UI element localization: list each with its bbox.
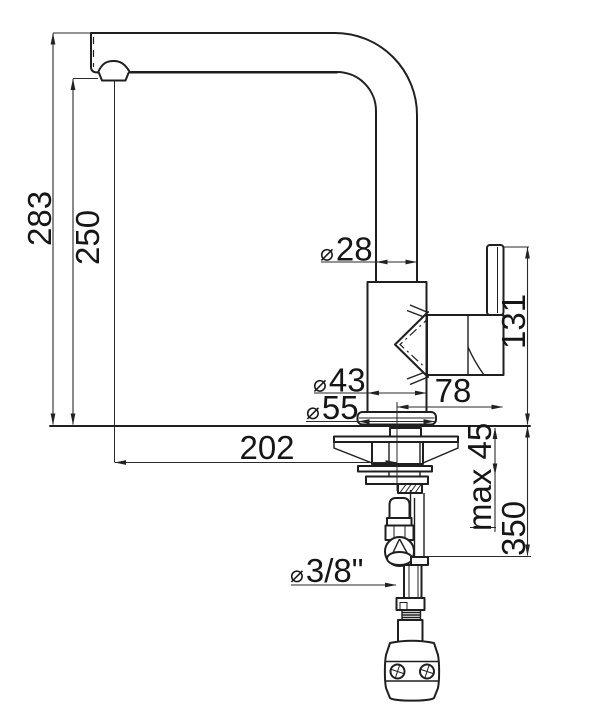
supply-hoses (385, 490, 428, 642)
dim-label-283: 283 (21, 191, 58, 246)
cartridge-housing (427, 315, 504, 375)
technical-drawing-canvas: 283 250 202 ⌀28 ⌀43 ⌀55 131 78 max 45 35… (0, 0, 602, 704)
connector-cylinder (398, 620, 423, 642)
dim-label-202: 202 (239, 429, 294, 466)
dim-label-max45: max 45 (461, 423, 498, 531)
washer (358, 466, 432, 472)
valve-collar (387, 518, 412, 526)
compression-nut (385, 641, 439, 701)
capped-hose-end (390, 498, 410, 518)
dim-label-d28: ⌀28 (320, 231, 373, 268)
handwheel-rim (387, 552, 412, 565)
hose-coupling (397, 598, 425, 610)
ribbed-connector (402, 610, 421, 620)
dim-label-131: 131 (495, 294, 532, 349)
hose-tube (404, 565, 422, 598)
faucet-dimension-drawing: 283 250 202 ⌀28 ⌀43 ⌀55 131 78 max 45 35… (0, 0, 602, 704)
dim-label-350: 350 (495, 501, 532, 556)
dim-label-78: 78 (435, 372, 472, 409)
shank-neck (390, 428, 421, 437)
faucet-cartridge-housing (427, 315, 504, 375)
mounting-hardware (334, 428, 458, 493)
dimension-lines (53, 33, 531, 585)
dim-label-d38: ⌀3/8" (290, 552, 363, 589)
hose-collar (411, 557, 428, 565)
spray-head-tip (91, 33, 337, 73)
dimension-labels: 283 250 202 ⌀28 ⌀43 ⌀55 131 78 max 45 35… (21, 191, 532, 589)
aerator (99, 73, 129, 81)
dim-label-250: 250 (69, 210, 106, 265)
